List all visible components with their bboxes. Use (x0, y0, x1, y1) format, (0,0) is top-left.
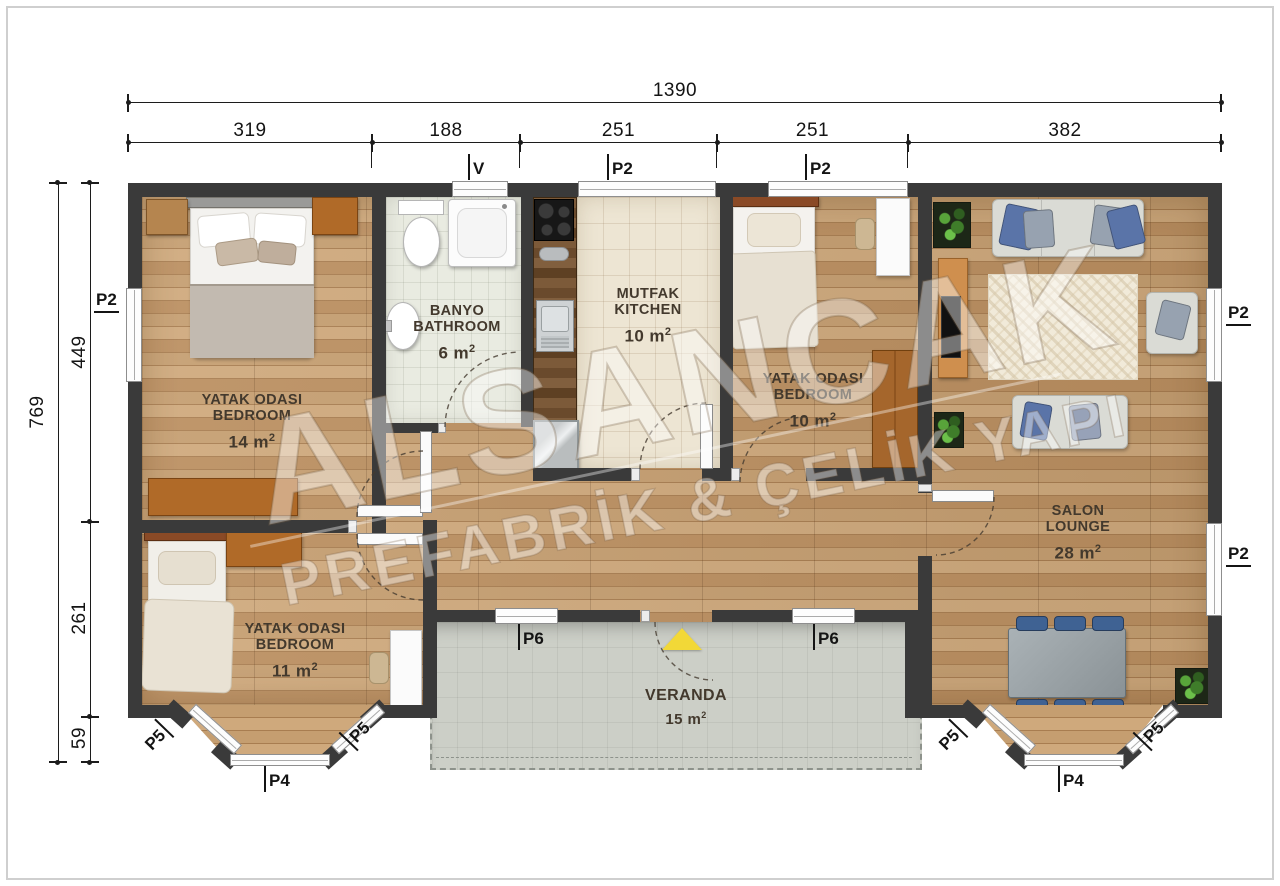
room-area: 10 m2 (568, 324, 728, 345)
dim-segment: 251 (717, 120, 908, 142)
room-area: 6 m2 (377, 341, 537, 362)
dim-extension (519, 152, 520, 168)
room-name-en: BEDROOM (162, 408, 342, 424)
window-code-p2: P2 (607, 154, 633, 180)
label-lounge: SALON LOUNGE 28 m2 (998, 503, 1158, 562)
window-code-v: V (468, 154, 484, 180)
window-code-p6: P6 (813, 624, 839, 650)
room-area: 28 m2 (998, 541, 1158, 562)
room-name: VERANDA (606, 688, 766, 704)
room-name-en: BATHROOM (377, 319, 537, 335)
code-tick (518, 624, 520, 650)
window-code-p6: P6 (518, 624, 544, 650)
room-name-tr: SALON (998, 503, 1158, 519)
dim-segment: 382 (908, 120, 1222, 142)
room-name-tr: YATAK ODASI (162, 392, 342, 408)
room-name-tr: BANYO (377, 303, 537, 319)
code-tick (264, 766, 266, 792)
label-bathroom: BANYO BATHROOM 6 m2 (377, 303, 537, 362)
room-name-tr: YATAK ODASI (205, 621, 385, 637)
label-veranda: VERANDA 15 m2 (606, 688, 766, 728)
code-tick (813, 624, 815, 650)
dim-segment: 251 (520, 120, 717, 142)
label-bedroom11: YATAK ODASI BEDROOM 11 m2 (205, 621, 385, 680)
window-code-p2: P2 (1226, 544, 1251, 567)
room-name-en: BEDROOM (205, 637, 385, 653)
dim-total-width: 1390 (128, 80, 1222, 102)
window-code-p2: P2 (1226, 303, 1251, 326)
room-name-tr: YATAK ODASI (723, 371, 903, 387)
room-area: 15 m2 (606, 707, 766, 728)
dim-dot (55, 180, 60, 185)
label-kitchen: MUTFAK KITCHEN 10 m2 (568, 286, 728, 345)
dim-dot (87, 519, 92, 524)
code-tick (468, 154, 470, 180)
window-code-p2: P2 (94, 290, 119, 313)
window-code-p4: P4 (1058, 766, 1084, 792)
code-tick (805, 154, 807, 180)
dim-extension (716, 152, 717, 168)
dim-total-height: 769 (28, 382, 48, 442)
room-name-en: LOUNGE (998, 519, 1158, 535)
dim-line-left-segments (90, 183, 91, 763)
code-tick (607, 154, 609, 180)
room-name-en: BEDROOM (723, 387, 903, 403)
dim-extension (371, 152, 372, 168)
dim-dot (55, 760, 60, 765)
dim-segment: 261 (70, 588, 90, 648)
dim-line-top-total (128, 102, 1222, 103)
code-tick (1058, 766, 1060, 792)
dim-line-left-total (58, 183, 59, 763)
dim-line-top-segments (128, 142, 1222, 143)
window-code-p2: P2 (805, 154, 831, 180)
room-area: 11 m2 (205, 659, 385, 680)
dim-segment: 319 (128, 120, 372, 142)
room-area: 14 m2 (162, 430, 342, 451)
window-code-p4: P4 (264, 766, 290, 792)
dim-segment: 449 (70, 322, 90, 382)
dim-dot (87, 180, 92, 185)
room-name-en: KITCHEN (568, 302, 728, 318)
dim-extension (907, 152, 908, 168)
dim-segment: 188 (372, 120, 520, 142)
dim-segment: 59 (70, 708, 90, 768)
floor-plan-canvas: YATAK ODASI BEDROOM 14 m2 BANYO BATHROOM… (0, 0, 1280, 886)
label-bedroom14: YATAK ODASI BEDROOM 14 m2 (162, 392, 342, 451)
room-name-tr: MUTFAK (568, 286, 728, 302)
label-bedroom10: YATAK ODASI BEDROOM 10 m2 (723, 371, 903, 430)
